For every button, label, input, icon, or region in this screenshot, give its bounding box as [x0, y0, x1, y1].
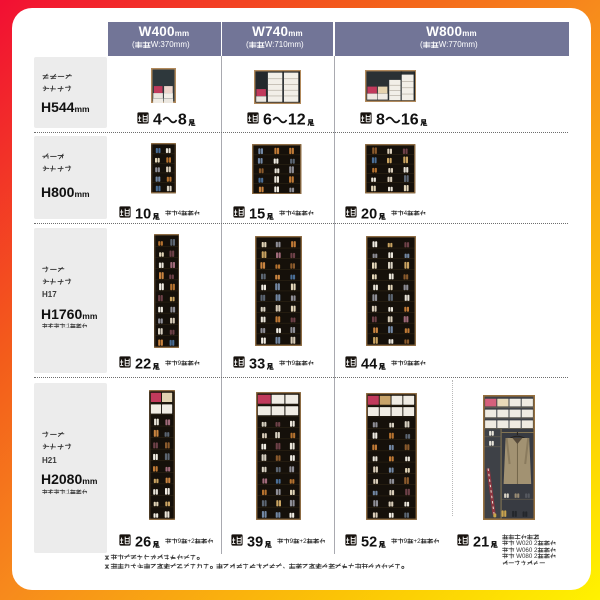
svg-text:8: 8 [178, 112, 187, 129]
svg-text:33: 33 [249, 357, 265, 372]
svg-text:4: 4 [153, 112, 162, 129]
svg-text:9: 9 [178, 360, 182, 367]
svg-text:26: 26 [135, 535, 151, 550]
svg-text:+2: +2 [299, 538, 307, 545]
svg-text:W:710mm): W:710mm) [264, 41, 303, 49]
svg-text:6: 6 [263, 112, 272, 129]
svg-text:22: 22 [135, 357, 151, 372]
svg-text::1: :1 [65, 324, 70, 330]
svg-text:20: 20 [361, 207, 377, 222]
svg-text:+2: +2 [187, 538, 195, 545]
svg-text:9: 9 [291, 360, 295, 367]
svg-text:39: 39 [247, 535, 263, 550]
svg-text:52: 52 [361, 535, 377, 550]
svg-text:9: 9 [404, 360, 408, 367]
svg-text:4: 4 [291, 210, 295, 217]
svg-text:4: 4 [178, 210, 182, 217]
svg-text::1: :1 [65, 490, 70, 496]
svg-text:(: ( [246, 41, 249, 49]
svg-text:(: ( [132, 41, 135, 49]
svg-text:9: 9 [178, 538, 182, 545]
svg-text:21: 21 [473, 535, 489, 550]
svg-text:8: 8 [376, 112, 385, 129]
svg-text:W:770mm): W:770mm) [438, 41, 477, 49]
svg-text:15: 15 [249, 207, 265, 222]
svg-text:12: 12 [288, 112, 306, 129]
svg-text:W:370mm): W:370mm) [151, 41, 190, 49]
svg-text:10: 10 [135, 207, 151, 222]
svg-text:(: ( [420, 41, 423, 49]
svg-text:16: 16 [401, 112, 419, 129]
svg-text:44: 44 [361, 357, 377, 372]
svg-text:4: 4 [404, 210, 408, 217]
svg-text:+2: +2 [413, 538, 421, 545]
svg-text:9: 9 [289, 538, 293, 545]
svg-text:9: 9 [404, 538, 408, 545]
